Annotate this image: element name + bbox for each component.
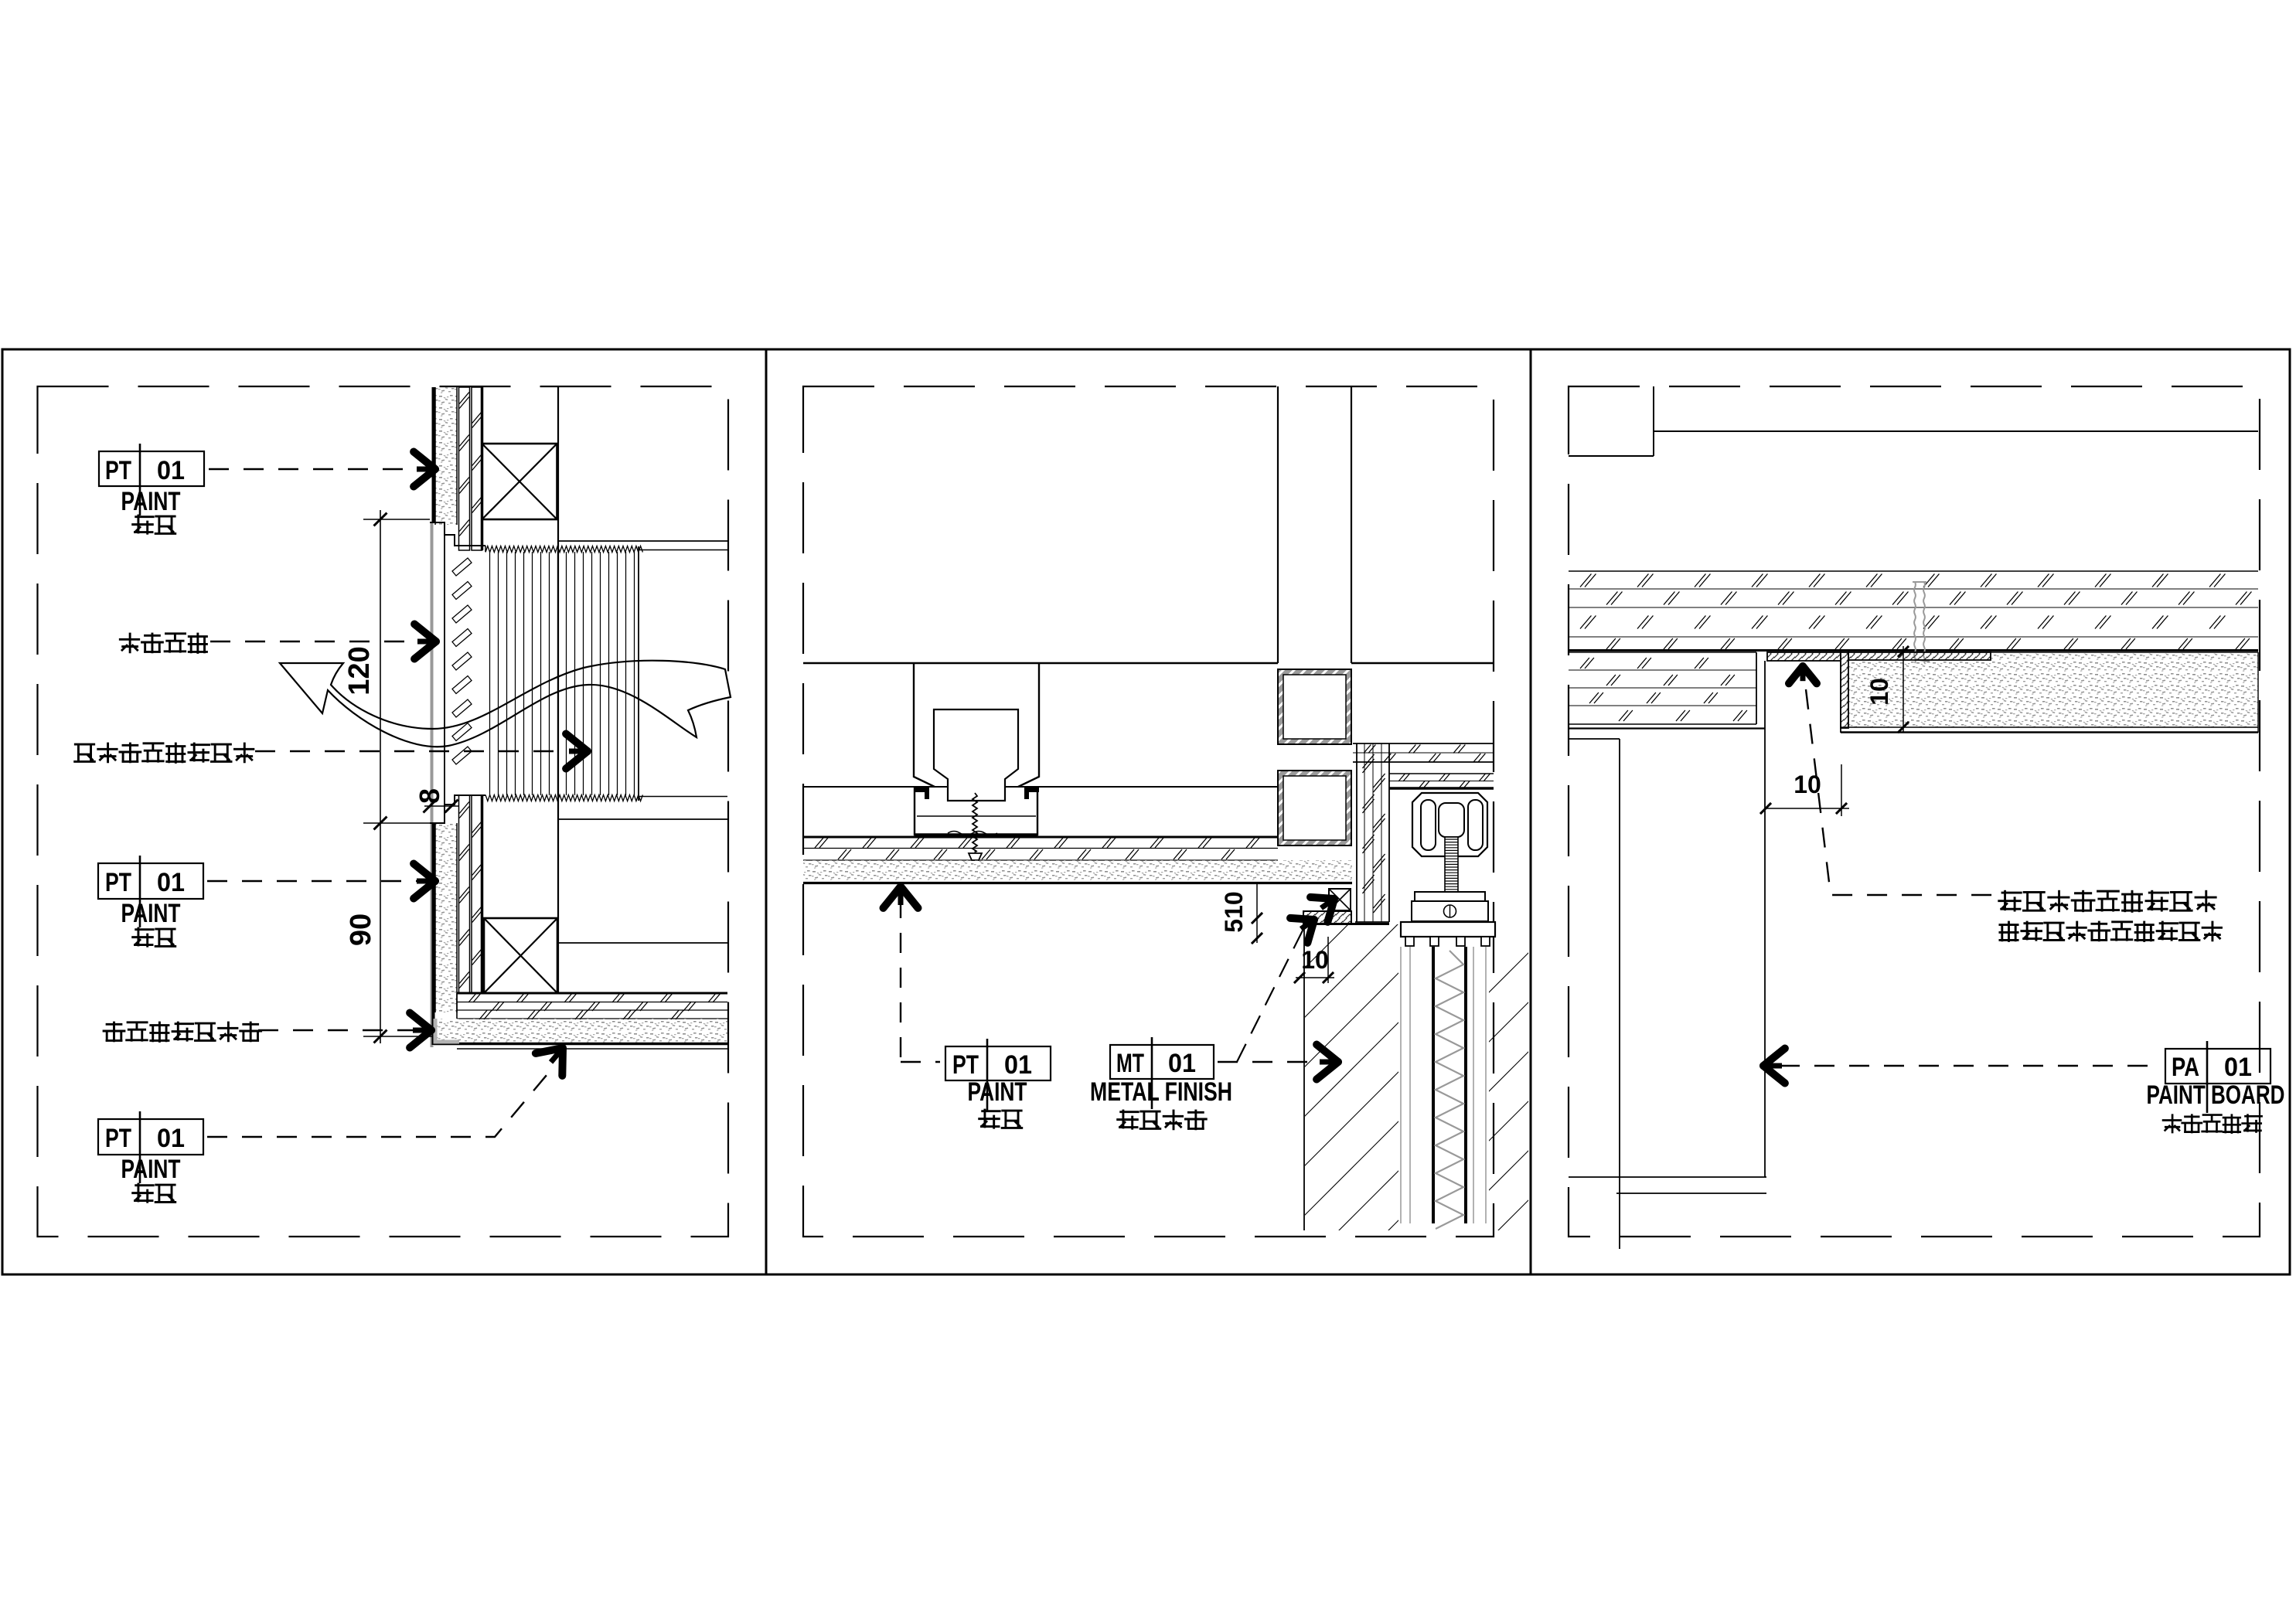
svg-text:01: 01 [1168,1049,1196,1078]
svg-text:PAINT BOARD: PAINT BOARD [2147,1080,2285,1110]
svg-text:10: 10 [1865,678,1893,706]
svg-text:01: 01 [1004,1050,1032,1080]
svg-text:PT: PT [105,868,131,897]
svg-text:PAINT: PAINT [968,1077,1027,1107]
svg-text:10: 10 [1301,946,1329,974]
svg-text:01: 01 [157,1124,185,1153]
svg-text:8: 8 [414,788,445,804]
svg-text:120: 120 [343,646,376,695]
svg-text:01: 01 [157,456,185,485]
svg-text:01: 01 [157,868,185,897]
svg-text:PT: PT [105,456,131,485]
svg-text:PAINT: PAINT [121,899,181,928]
svg-text:PAINT: PAINT [121,1155,181,1184]
svg-text:METAL FINISH: METAL FINISH [1090,1077,1232,1107]
svg-text:PAINT: PAINT [121,487,181,516]
svg-text:PT: PT [952,1050,979,1080]
svg-text:01: 01 [2224,1053,2252,1082]
svg-text:MT: MT [1116,1049,1144,1078]
svg-text:90: 90 [345,914,377,946]
svg-text:PA: PA [2172,1053,2199,1082]
svg-text:PT: PT [105,1124,131,1153]
svg-text:510: 510 [1220,891,1248,932]
